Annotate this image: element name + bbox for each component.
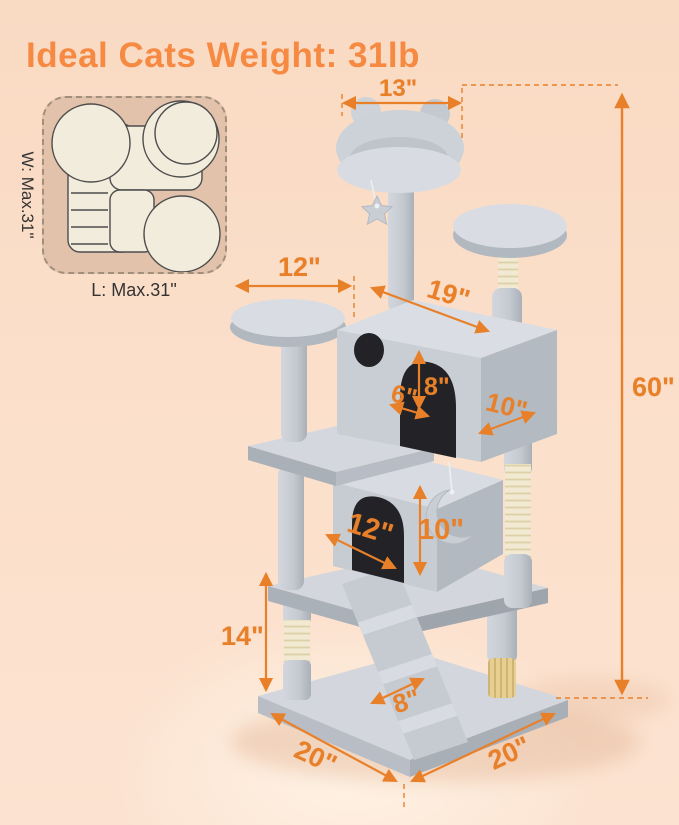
footprint-width-label: W: Max.31"	[17, 120, 37, 270]
footprint-length-label: L: Max.31"	[54, 280, 214, 300]
footprint-topview-diagram	[44, 98, 225, 272]
mid-post	[278, 466, 304, 590]
dim-lower-condo-height-label: 10"	[418, 514, 464, 547]
page-title: Ideal Cats Weight: 31lb	[26, 36, 446, 76]
footprint-topview-panel	[42, 96, 227, 274]
dim-top-perch-label: 13"	[379, 75, 417, 103]
dim-total-height-label: 60"	[632, 372, 675, 403]
dim-left-perch-label: 12"	[278, 252, 321, 283]
top-perch	[336, 97, 464, 193]
dim-post-height-label: 14"	[221, 621, 264, 652]
right-scratching-post	[504, 430, 532, 608]
dim-door-height-label: 8"	[424, 373, 450, 402]
left-perch	[230, 299, 346, 442]
product-dimension-infographic: { "title": "Ideal Cats Weight: 31lb", "i…	[0, 0, 679, 825]
